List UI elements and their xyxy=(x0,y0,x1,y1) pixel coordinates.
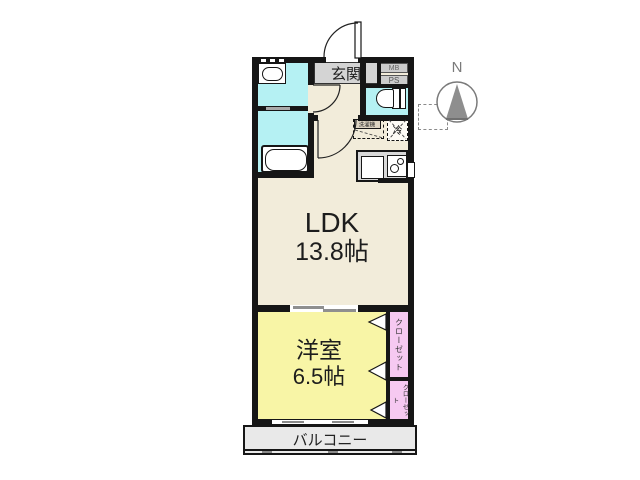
western-size: 6.5帖 xyxy=(293,364,346,389)
wall-left xyxy=(252,57,258,425)
wall-hall-left-lower xyxy=(308,113,314,178)
balcony-label: バルコニー xyxy=(270,429,390,449)
bathtub-frame xyxy=(261,145,309,173)
wall-under-toilet xyxy=(358,115,414,121)
ldk-label: LDK 13.8帖 xyxy=(262,205,402,269)
compass-north-label: N xyxy=(448,58,466,76)
washer-space-label: 洗濯機 xyxy=(359,120,375,128)
kitchen-sink xyxy=(361,156,384,179)
closet-lower-label: クローゼット xyxy=(390,382,408,419)
ldk-name: LDK xyxy=(305,208,359,239)
wall-hall-ldk-stub xyxy=(308,115,318,121)
outdoor-unit-space xyxy=(418,104,448,130)
vanity-tick-1 xyxy=(260,58,267,63)
stove-burner-small xyxy=(397,158,404,165)
wall-bottom-left xyxy=(252,419,272,425)
entrance-label: 玄関 xyxy=(314,62,378,84)
vanity-tick-3 xyxy=(278,58,285,63)
stove-burner-large xyxy=(390,164,399,173)
vanity-counter xyxy=(258,63,286,84)
wall-bath-bottom xyxy=(252,172,314,178)
balcony-rail-tick-2 xyxy=(328,451,338,453)
meter-box: MB xyxy=(380,63,408,73)
closet-upper-label: クローゼット xyxy=(390,314,408,376)
sliding-door-panel-1 xyxy=(293,306,324,309)
kitchen-counter-base xyxy=(378,178,408,183)
bathtub xyxy=(265,149,307,171)
toilet-bowl xyxy=(376,89,394,108)
fridge-label: 冷 xyxy=(393,122,403,137)
wall-right xyxy=(408,57,414,425)
window-balcony-sash-2 xyxy=(332,421,354,423)
compass-needle xyxy=(446,84,468,119)
wall-bottom-right xyxy=(368,419,414,425)
window-balcony-sash-1 xyxy=(282,421,304,423)
fridge-space: 冷 xyxy=(387,118,408,141)
ldk-size: 13.8帖 xyxy=(295,239,369,267)
entrance-door-arc xyxy=(324,23,358,57)
western-name: 洋室 xyxy=(296,337,342,363)
toilet-tank-divider xyxy=(399,89,401,108)
toilet-tank xyxy=(392,88,406,109)
balcony-rail-tick-3 xyxy=(392,451,402,453)
bath-sliding-door xyxy=(266,107,290,110)
sliding-door-panel-2 xyxy=(323,309,356,312)
entrance-door-leaf xyxy=(355,22,361,58)
western-room-label: 洋室 6.5帖 xyxy=(260,333,378,393)
floor-plan-canvas: { "compass": { "north": "N" }, "rooms": … xyxy=(0,0,640,480)
wall-toilet-top xyxy=(366,84,408,88)
vanity-basin xyxy=(262,67,283,81)
kitchen-stove xyxy=(387,155,407,177)
balcony-rail-tick-1 xyxy=(262,451,272,453)
vanity-tick-2 xyxy=(269,58,276,63)
wall-ldk-western-left xyxy=(252,305,290,312)
window-right-wall xyxy=(407,162,415,178)
wall-ldk-western-right xyxy=(358,305,414,312)
wall-closet-divider xyxy=(386,377,408,381)
meter-box-label: MB xyxy=(389,65,400,72)
